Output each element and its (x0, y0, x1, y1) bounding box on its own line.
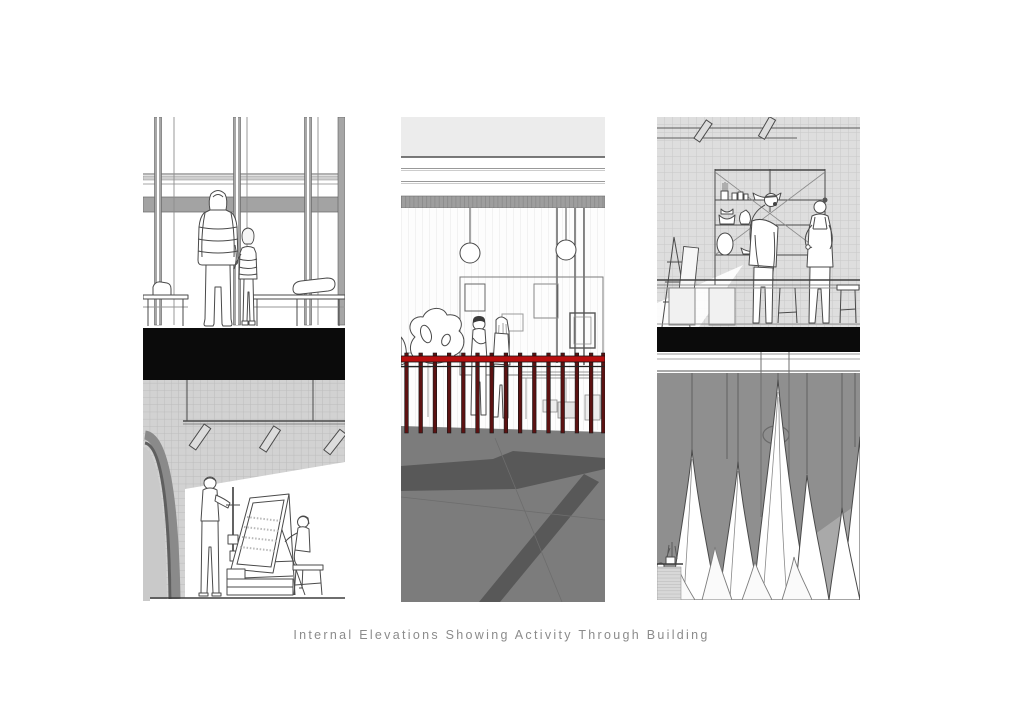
ceramics-workshop (657, 117, 860, 327)
balustrade-posts (405, 353, 605, 433)
pendant-globe-icon (460, 243, 480, 263)
print-workshop (143, 380, 345, 601)
pendant-globe-icon (556, 240, 576, 260)
floor-slab (143, 328, 345, 380)
jug-object (153, 282, 171, 295)
textile-store (657, 352, 860, 600)
ceiling-band (401, 117, 605, 157)
presentation-board: Internal Elevations Showing Activity Thr… (0, 0, 1024, 725)
balustrade-top-rail (401, 356, 605, 362)
elevation-panel-mezzanine-gallery (401, 117, 605, 602)
ceiling-zone (401, 117, 605, 208)
bulkhead-band (401, 196, 605, 208)
spandrel-band (143, 197, 345, 212)
elevation-panel-ceramics-workshop (657, 117, 860, 600)
window-wall (143, 117, 345, 328)
transom-band (143, 176, 345, 180)
vase-icon (717, 233, 733, 255)
board-caption: Internal Elevations Showing Activity Thr… (143, 628, 860, 642)
elevation-panel-window-gallery (143, 117, 345, 601)
floor-slab (657, 327, 860, 352)
